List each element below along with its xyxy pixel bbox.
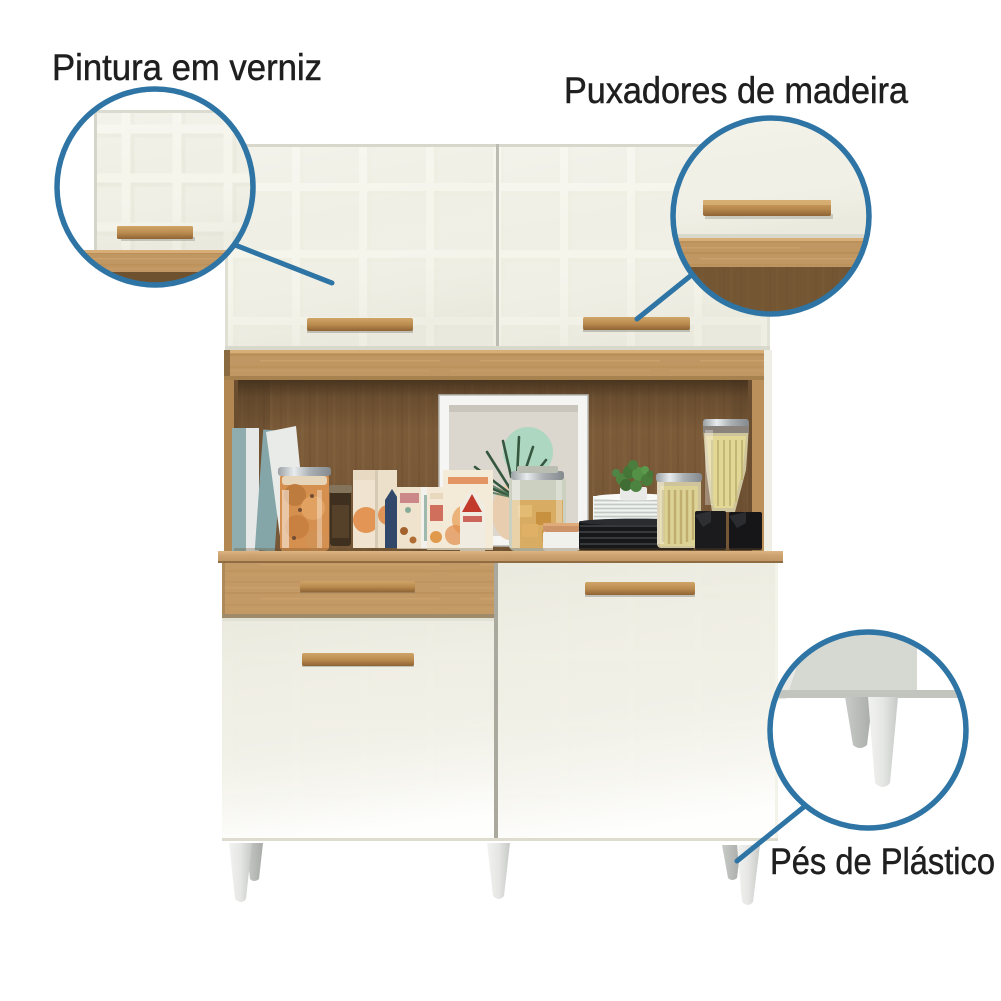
svg-text:Pintura em verniz: Pintura em verniz — [52, 47, 322, 88]
svg-text:Pés de Plástico: Pés de Plástico — [770, 841, 995, 882]
svg-text:Puxadores de madeira: Puxadores de madeira — [564, 70, 908, 111]
